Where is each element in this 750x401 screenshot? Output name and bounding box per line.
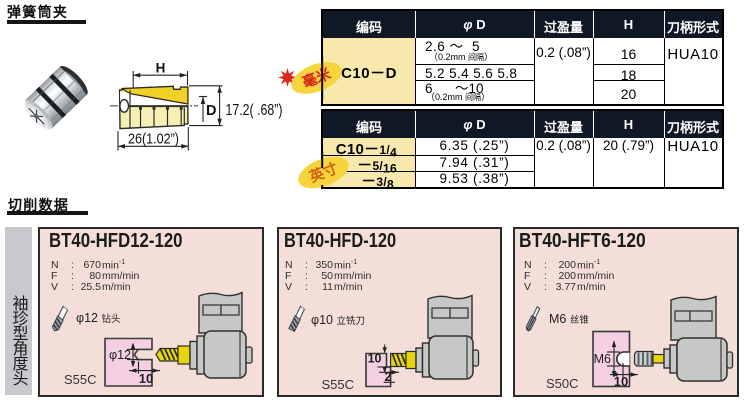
svg-text:D: D — [206, 103, 216, 119]
svg-text:M6: M6 — [594, 352, 611, 366]
svg-text:26(1.02”): 26(1.02”) — [128, 131, 179, 148]
svg-text:φ12: φ12 — [109, 348, 131, 362]
svg-text:10: 10 — [614, 374, 628, 389]
svg-text:H: H — [156, 61, 166, 76]
svg-text:10: 10 — [139, 371, 153, 386]
svg-text:10: 10 — [368, 352, 382, 366]
svg-text:17.2( .68”): 17.2( .68”) — [226, 102, 283, 119]
svg-text:2: 2 — [385, 370, 392, 384]
